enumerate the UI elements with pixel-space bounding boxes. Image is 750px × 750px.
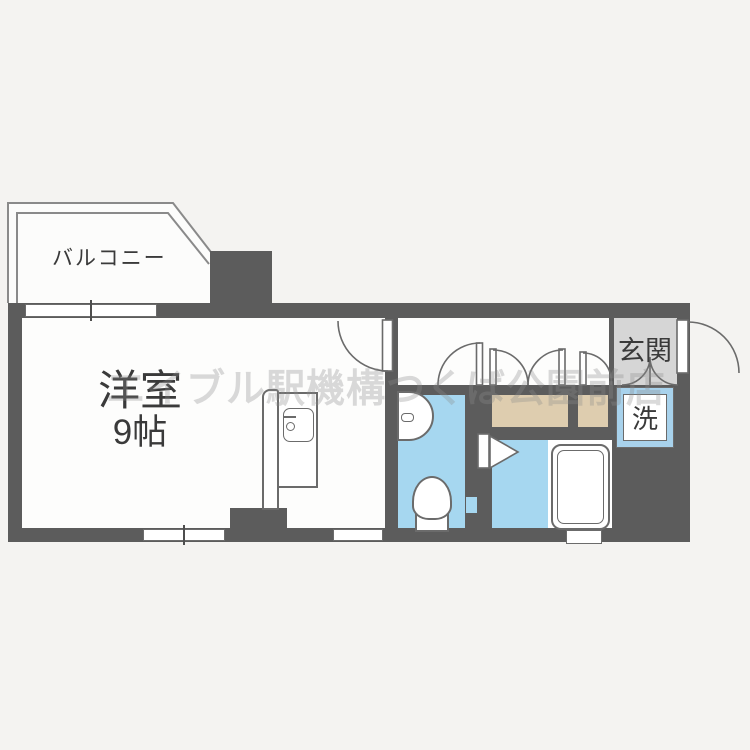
- floor-plan: 洗: [0, 0, 750, 750]
- shower-folding-door-triangle: [490, 436, 518, 468]
- entrance-door-arc: [688, 322, 739, 373]
- entrance-door-leaf: [677, 320, 688, 373]
- agency-watermark: エイブル駅機構つくば公園前店: [106, 358, 666, 414]
- shower-folding-door-panel: [478, 434, 489, 468]
- balcony-label: バルコニー: [52, 242, 167, 272]
- main-room-size: 9帖: [75, 414, 205, 453]
